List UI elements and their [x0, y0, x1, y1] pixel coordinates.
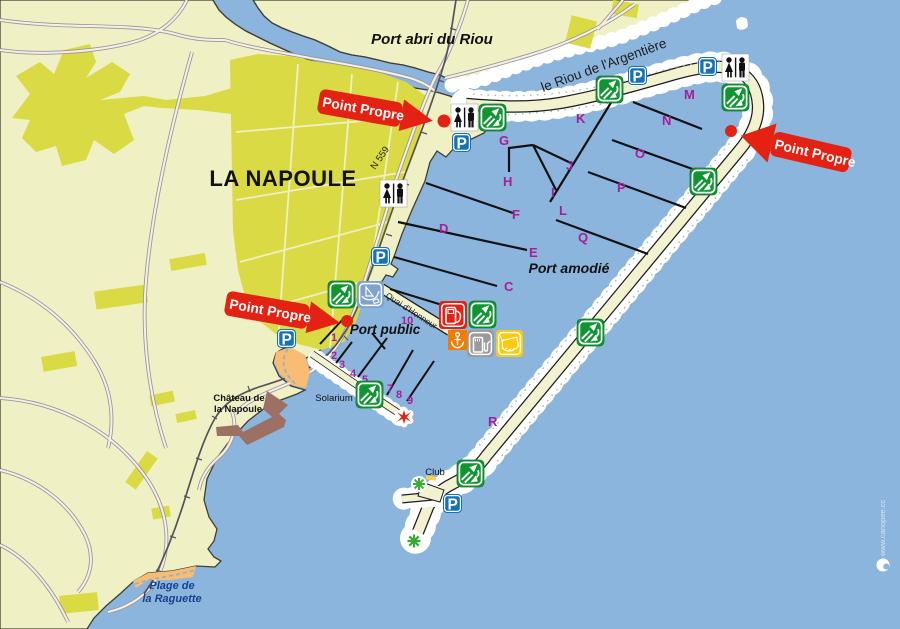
svg-text:E: E [529, 245, 538, 260]
svg-text:9: 9 [407, 395, 413, 407]
svg-text:H: H [503, 174, 512, 189]
svg-text:Q: Q [578, 230, 588, 245]
svg-text:M: M [684, 87, 695, 102]
svg-text:www.canopee.cc: www.canopee.cc [878, 499, 887, 557]
svg-text:la Raguette: la Raguette [142, 593, 201, 605]
svg-text:J: J [566, 158, 573, 173]
svg-text:Solarium: Solarium [315, 393, 353, 404]
svg-text:I: I [551, 185, 555, 200]
svg-text:L: L [559, 203, 567, 218]
svg-text:LA NAPOULE: LA NAPOULE [209, 166, 356, 191]
svg-text:la Napoule: la Napoule [214, 404, 262, 415]
svg-text:K: K [576, 111, 586, 126]
svg-text:Port abri du Riou: Port abri du Riou [371, 31, 493, 48]
svg-text:O: O [635, 146, 645, 161]
svg-text:Port public: Port public [350, 322, 421, 337]
svg-text:Port amodié: Port amodié [529, 260, 610, 276]
svg-text:2: 2 [331, 350, 337, 362]
svg-text:4: 4 [350, 368, 357, 380]
svg-text:3: 3 [339, 359, 345, 371]
svg-text:Château de: Château de [213, 393, 264, 404]
svg-text:N: N [662, 113, 671, 128]
svg-text:Plage de: Plage de [149, 580, 194, 592]
svg-text:C: C [504, 279, 514, 294]
svg-text:D: D [439, 221, 448, 236]
svg-text:G: G [499, 133, 509, 148]
svg-text:1: 1 [331, 332, 337, 344]
svg-text:8: 8 [396, 389, 402, 401]
svg-text:Club: Club [425, 467, 445, 478]
svg-text:7: 7 [387, 383, 393, 395]
svg-text:F: F [512, 207, 520, 222]
svg-text:R: R [488, 414, 498, 429]
svg-text:P: P [617, 180, 626, 195]
